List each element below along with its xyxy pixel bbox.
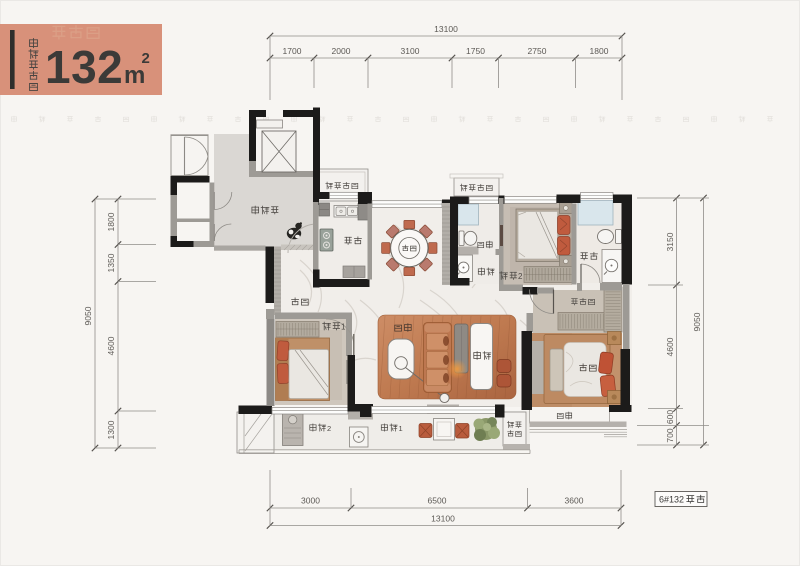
svg-text:1350: 1350 <box>106 253 116 272</box>
svg-text:13100: 13100 <box>434 24 458 34</box>
svg-text:1700: 1700 <box>283 46 302 56</box>
svg-text:600: 600 <box>665 410 675 424</box>
svg-text:4600: 4600 <box>106 336 116 355</box>
svg-text:1800: 1800 <box>590 46 609 56</box>
svg-text:6#132: 6#132 <box>659 495 684 505</box>
svg-text:9050: 9050 <box>83 306 93 325</box>
svg-text:1300: 1300 <box>106 420 116 439</box>
svg-text:4600: 4600 <box>665 337 675 356</box>
svg-text:132: 132 <box>45 41 123 93</box>
svg-text:1: 1 <box>341 323 346 332</box>
svg-text:3100: 3100 <box>401 46 420 56</box>
svg-text:13100: 13100 <box>431 514 455 524</box>
svg-text:6500: 6500 <box>428 496 447 506</box>
svg-text:1750: 1750 <box>466 46 485 56</box>
svg-text:2750: 2750 <box>528 46 547 56</box>
svg-text:2: 2 <box>518 272 523 281</box>
svg-text:3000: 3000 <box>301 496 320 506</box>
svg-text:2000: 2000 <box>332 46 351 56</box>
svg-text:1800: 1800 <box>106 212 116 231</box>
svg-text:2: 2 <box>142 50 150 67</box>
svg-text:3600: 3600 <box>565 496 584 506</box>
svg-text:700: 700 <box>665 428 675 442</box>
svg-text:3150: 3150 <box>665 232 675 251</box>
svg-text:2: 2 <box>327 424 331 433</box>
svg-text:9050: 9050 <box>692 312 702 331</box>
svg-text:1: 1 <box>399 424 403 433</box>
